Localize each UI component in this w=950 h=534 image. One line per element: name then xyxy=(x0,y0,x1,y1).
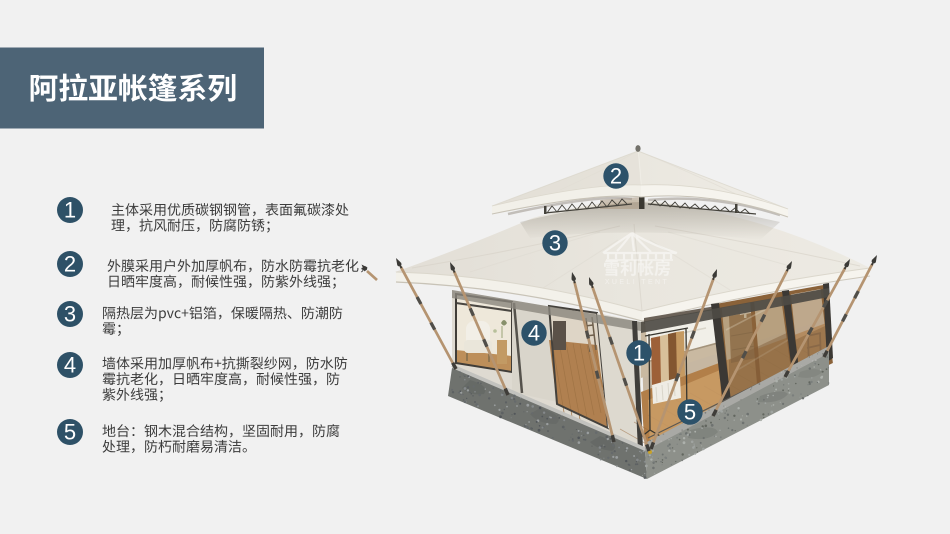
svg-text:4: 4 xyxy=(64,353,76,378)
svg-text:XUELI TENT: XUELI TENT xyxy=(605,279,669,286)
svg-text:1: 1 xyxy=(633,341,645,366)
svg-text:2: 2 xyxy=(64,252,76,277)
svg-text:2: 2 xyxy=(610,164,622,189)
svg-text:5: 5 xyxy=(64,420,76,445)
svg-text:3: 3 xyxy=(549,231,561,256)
svg-text:1: 1 xyxy=(64,198,76,223)
svg-text:3: 3 xyxy=(64,302,76,327)
svg-text:4: 4 xyxy=(528,321,540,346)
svg-text:5: 5 xyxy=(684,400,696,425)
